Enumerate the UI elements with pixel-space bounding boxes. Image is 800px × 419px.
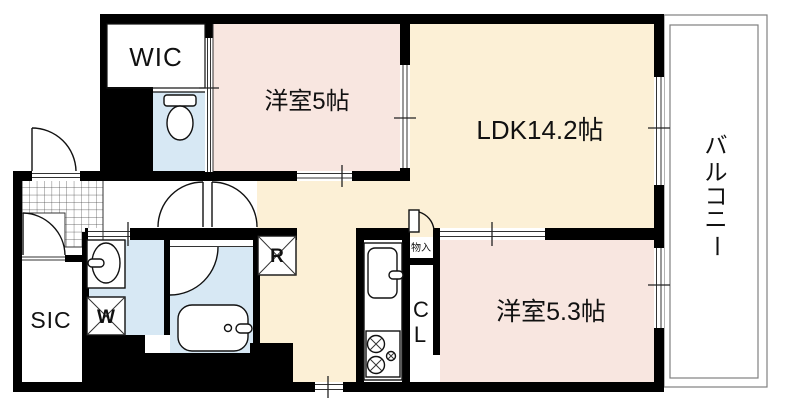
wall-right-b [654,185,664,248]
ldk-door [212,182,257,227]
wall-partition-bottom [400,168,410,181]
wall-wic-stub [205,24,213,38]
wall-sic-top [65,255,82,262]
opening-bottom-wall [315,382,343,392]
label-wic: WIC [129,42,183,72]
sliding-door-western5 [297,171,352,181]
sliding-opening-wic-toilet [205,38,213,172]
label-western53: 洋室5.3帖 [496,298,606,326]
wall-wash-bath-divider [164,240,170,335]
wall-kitchen-right [402,240,410,382]
window-western53 [654,248,664,328]
kitchen-counter-icon [364,243,403,380]
label-ldk: LDK14.2帖 [476,115,603,145]
wall-room53-left [433,228,440,355]
wall-partition-top [400,14,410,65]
kitchen-faucet-icon [389,271,403,279]
floor-plan-page: W R [0,0,800,419]
entrance-door [32,128,76,171]
label-balcony: バ ル コ ニ ー [704,132,730,258]
wall-right-a [654,14,664,77]
label-storage: 物入 [411,241,431,254]
sic-door [23,213,65,255]
partition-window [400,65,410,168]
label-balcony-char4: ニ [705,206,728,232]
wall-mass-below-fridge [250,343,293,385]
opening-bathroom [170,240,253,247]
opening-sic [22,255,65,262]
wall-duct-mass [100,87,153,172]
stove-icon [366,331,400,377]
wall-entry-right [80,171,107,181]
refrigerator-box: R [258,236,296,275]
bathtub-icon [178,305,252,351]
wall-mid-band [103,171,410,181]
label-balcony-char5: ー [704,235,730,258]
label-closet-l: L [414,322,426,347]
window-ldk [654,77,664,185]
wall-top [100,14,663,24]
entrance-threshold [32,171,80,181]
sliding-door-washroom [88,228,130,240]
wall-left-lower [13,171,22,392]
washbasin-icon [87,240,125,288]
washer-box: W [87,297,125,335]
washroom-step [145,335,170,353]
label-sic: SIC [30,307,71,333]
wall-mass-below-bath [166,353,260,385]
washer-label: W [97,307,115,328]
label-closet-c: C [413,297,429,322]
floor-plan: W R [0,0,800,419]
wall-kitchen-left [356,240,364,382]
refrigerator-label: R [270,246,284,267]
label-balcony-char1: バ [705,132,728,158]
wall-ldk53-band [545,228,654,240]
label-balcony-char2: ル [705,159,728,185]
wall-kitchen-top [356,228,402,240]
label-western5: 洋室5帖 [264,88,349,115]
closet-opening [433,355,440,382]
